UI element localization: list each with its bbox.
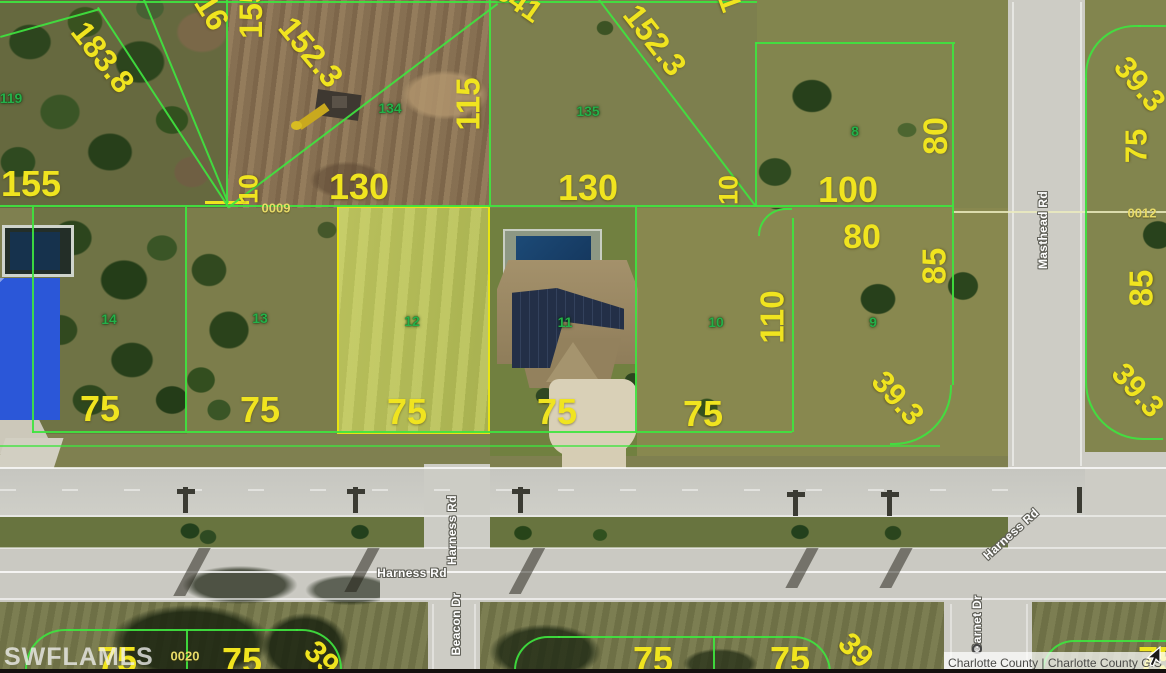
dim-label-75: 75 — [387, 394, 427, 430]
dim-label-341: 341 — [489, 0, 547, 29]
dim-label-155: 155 — [235, 0, 267, 39]
dim-label-100: 100 — [818, 172, 878, 208]
dim-label-85: 85 — [918, 248, 951, 285]
dim-label-39: 39 — [299, 635, 345, 673]
dim-label-16: 16 — [189, 0, 235, 36]
lot-label-12: 12 — [404, 314, 420, 328]
lot-label-119: 119 — [0, 91, 22, 105]
sec-label-0012: 0012 — [1128, 207, 1157, 220]
dim-label-1: 1 — [712, 0, 746, 16]
lot-label-135: 135 — [576, 104, 599, 118]
dim-label-130: 130 — [558, 170, 618, 206]
mouse-cursor-icon — [1142, 646, 1164, 668]
road-label-harness-rd: Harness Rd — [981, 506, 1041, 562]
lot-label-134: 134 — [378, 101, 401, 115]
lot-label-13: 13 — [252, 311, 268, 325]
map-labels-layer: 155183.816155152.3341115152.311013013010… — [0, 0, 1166, 673]
dim-label-75: 75 — [537, 394, 577, 430]
dim-label-152-3: 152.3 — [618, 0, 693, 81]
attribution-text: Charlotte County | Charlotte County GIS — [948, 656, 1162, 670]
gis-map-canvas[interactable]: 155183.816155152.3341115152.311013013010… — [0, 0, 1166, 673]
lot-label-11: 11 — [558, 315, 573, 329]
bottom-border-bar — [0, 669, 1166, 673]
road-label-masthead-rd: Masthead Rd — [1037, 191, 1049, 269]
lot-label-10: 10 — [708, 315, 724, 329]
dim-label-80: 80 — [919, 117, 953, 155]
dim-label-39-3: 39.3 — [1109, 51, 1166, 117]
dim-label-75: 75 — [1121, 129, 1152, 163]
dim-label-183-8: 183.8 — [66, 16, 141, 99]
road-label-harness-rd: Harness Rd — [377, 567, 447, 579]
road-label-beacon-dr: Beacon Dr — [450, 593, 462, 656]
sec-label-0009: 0009 — [262, 202, 291, 215]
dim-label-75: 75 — [80, 391, 120, 427]
lot-label-14: 14 — [101, 312, 117, 326]
dim-label-39: 39 — [833, 627, 879, 673]
dim-label-80: 80 — [843, 220, 881, 254]
lot-label-8: 8 — [851, 124, 859, 138]
road-label-harness-rd: Harness Rd — [446, 495, 458, 565]
dim-label-115: 115 — [452, 77, 485, 130]
dim-label-110: 110 — [756, 290, 789, 343]
sec-label-0020: 0020 — [171, 650, 200, 663]
dim-label-85: 85 — [1125, 270, 1158, 307]
dim-label-39-3: 39.3 — [866, 365, 929, 431]
dim-label-10: 10 — [716, 175, 743, 205]
dim-label-75: 75 — [683, 396, 723, 432]
lot-label-9: 9 — [869, 315, 877, 329]
dim-label-39-3: 39.3 — [1106, 357, 1166, 423]
dim-label-10: 10 — [236, 174, 263, 204]
dim-label-152-3: 152.3 — [273, 11, 349, 93]
dim-label-75: 75 — [240, 392, 280, 428]
dim-label-155: 155 — [1, 166, 61, 202]
dim-label-130: 130 — [329, 169, 389, 205]
